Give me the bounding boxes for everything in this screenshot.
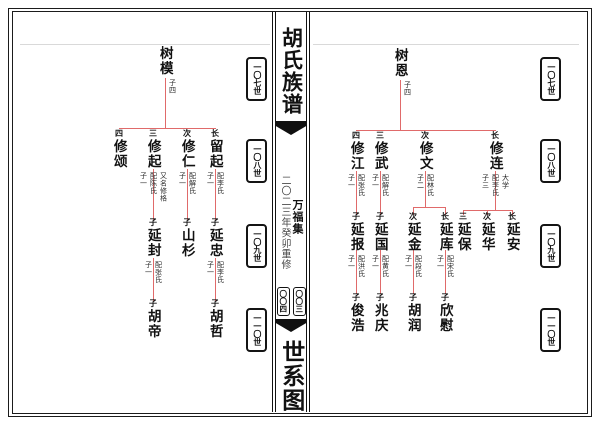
person: 四 修颂 [112, 130, 126, 169]
spine-column: 胡氏族谱 二〇二三年癸卯重修 万福集 〇〇四 〇〇三 世系图 [275, 12, 307, 412]
person-name: 延华 [480, 222, 494, 252]
person-rank: 次 [409, 213, 417, 222]
person: 四 修江 子一配张氏 [348, 132, 365, 197]
page-number-right: 〇〇三 [293, 287, 306, 316]
person-name: 胡帝 [146, 309, 160, 339]
person-annotation: 子一 [372, 174, 379, 197]
person: 长 延库 子一配宋氏 [437, 213, 454, 278]
person-annotation: 子四 [169, 79, 176, 94]
person: 子 延报 子一配洪氏 [348, 213, 365, 278]
person-rank: 三 [149, 130, 157, 139]
person-name: 修起 [146, 139, 160, 169]
person-name: 树恩 [393, 48, 407, 78]
person: 子 胡哲 [208, 300, 222, 339]
person-name: 树模 [158, 46, 172, 76]
generation-badge: 一〇七世 [540, 57, 561, 101]
person-name: 胡润 [406, 303, 420, 333]
person-name: 山杉 [180, 228, 194, 258]
person-name: 欣慰 [438, 303, 452, 333]
person-annotation: 子一 [207, 172, 214, 195]
person-name: 延库 [438, 222, 452, 252]
person-name: 修仁 [180, 139, 194, 169]
person-rank: 长 [491, 132, 499, 141]
person-name: 俊浩 [349, 303, 363, 333]
person-annotation: 配陈氏 [150, 172, 157, 202]
generation-badge-label: 一〇九世 [252, 230, 261, 262]
person-name: 修文 [418, 141, 432, 171]
person-rank: 次 [183, 130, 191, 139]
person: 树模 子四 [158, 46, 172, 94]
person-annotation: 配林氏 [427, 174, 434, 197]
person-rank: 子 [376, 213, 384, 222]
person-rank: 四 [352, 132, 360, 141]
page-numbers: 〇〇四 〇〇三 [276, 287, 306, 319]
person-rank: 长 [211, 130, 219, 139]
person-rank: 子 [376, 294, 384, 303]
person-rank: 子 [149, 219, 157, 228]
person: 子 延封 子一配张氏 [145, 219, 162, 284]
person-annotation: 子二 [417, 174, 424, 197]
person: 子 俊浩 [349, 294, 363, 333]
person-rank: 子 [149, 300, 157, 309]
person-annotation: 配解氏 [382, 174, 389, 197]
generation-badge-label: 一〇八世 [252, 145, 261, 177]
person-annotation: 子一 [372, 255, 379, 278]
volume-label: 万福集 [291, 199, 302, 235]
genealogy-book-spread: 胡氏族谱 二〇二三年癸卯重修 万福集 〇〇四 〇〇三 世系图 一〇七世 一〇八世… [0, 0, 600, 423]
person-rank: 三 [459, 213, 467, 222]
person-name: 延封 [146, 228, 160, 258]
person-name: 修江 [349, 141, 363, 171]
person: 三 修起 子一配陈氏又名修格 [140, 130, 167, 202]
person: 树恩 子四 [393, 48, 407, 96]
person: 子 胡润 [406, 294, 420, 333]
person: 子 兆庆 [373, 294, 387, 333]
person: 子 山杉 [180, 219, 194, 258]
connector-line [413, 207, 446, 208]
person: 三 修武 子一配解氏 [372, 132, 389, 197]
header-rule-left [20, 44, 270, 45]
person-annotation: 配黄氏 [382, 255, 389, 278]
spine-middle: 二〇二三年癸卯重修 万福集 [276, 135, 306, 287]
person-name: 留起 [208, 139, 222, 169]
person: 次 修文 子二配林氏 [417, 132, 434, 197]
person-rank: 子 [352, 294, 360, 303]
person-name: 延安 [505, 222, 519, 252]
person-annotation: 又名修格 [160, 172, 167, 202]
person-rank: 子 [352, 213, 360, 222]
generation-badge: 一一〇世 [540, 308, 561, 352]
person-annotation: 配张氏 [155, 261, 162, 284]
generation-badge: 一〇八世 [540, 139, 561, 183]
header-rule-right [313, 44, 579, 45]
generation-badge: 一〇九世 [540, 224, 561, 268]
generation-badge-label: 一一〇世 [252, 314, 261, 346]
person-annotation: 子一 [207, 261, 214, 284]
person-rank: 子 [211, 300, 219, 309]
person: 次 延金 子一配段氏 [405, 213, 422, 278]
person-name: 延忠 [208, 228, 222, 258]
person-annotation: 子一 [348, 174, 355, 197]
person-rank: 长 [441, 213, 449, 222]
page-number-left: 〇〇四 [277, 287, 290, 316]
generation-badge: 一〇八世 [246, 139, 267, 183]
person: 子 胡帝 [146, 300, 160, 339]
person-annotation: 子一 [437, 255, 444, 278]
person-name: 修颂 [112, 139, 126, 169]
person: 次 延华 [480, 213, 494, 252]
person: 子 延忠 子一配李氏 [207, 219, 224, 284]
person-rank: 子 [409, 294, 417, 303]
edition-note: 二〇二三年癸卯重修 [279, 175, 289, 270]
person-name: 延报 [349, 222, 363, 252]
person-annotation: 配李氏 [217, 261, 224, 284]
person-annotation: 子一 [405, 255, 412, 278]
fishtail-ornament [276, 122, 306, 135]
connector-line [119, 128, 216, 129]
generation-badge-label: 一〇七世 [252, 63, 261, 95]
generation-badge: 一一〇世 [246, 308, 267, 352]
person-annotation: 配段氏 [415, 255, 422, 278]
person: 长 修连 子三配李氏大学 [482, 132, 509, 197]
book-title: 胡氏族谱 [281, 12, 302, 121]
person-annotation: 配李氏 [492, 174, 499, 197]
person-name: 兆庆 [373, 303, 387, 333]
person-name: 延保 [456, 222, 470, 252]
person: 次 修仁 子一配解氏 [179, 130, 196, 195]
generation-badge-label: 一〇七世 [546, 63, 555, 95]
person-name: 延国 [373, 222, 387, 252]
person-rank: 子 [183, 219, 191, 228]
person: 长 留起 子一配李氏 [207, 130, 224, 195]
person-rank: 长 [508, 213, 516, 222]
spine-divider [276, 121, 306, 122]
person-annotation: 配洪氏 [358, 255, 365, 278]
book-spine: 胡氏族谱 二〇二三年癸卯重修 万福集 〇〇四 〇〇三 世系图 [272, 12, 310, 412]
person-annotation: 大学 [502, 174, 509, 197]
person-annotation: 子一 [179, 172, 186, 195]
person-name: 胡哲 [208, 309, 222, 339]
person: 长 延安 [505, 213, 519, 252]
generation-badge: 一〇七世 [246, 57, 267, 101]
person-rank: 次 [483, 213, 491, 222]
person-annotation: 子一 [140, 172, 147, 202]
person-annotation: 子四 [404, 81, 411, 96]
person-annotation: 子一 [348, 255, 355, 278]
person: 子 延国 子一配黄氏 [372, 213, 389, 278]
generation-badge: 一〇九世 [246, 224, 267, 268]
person-annotation: 子一 [145, 261, 152, 284]
person-name: 修连 [488, 141, 502, 171]
person-annotation: 子三 [482, 174, 489, 197]
person-rank: 子 [211, 219, 219, 228]
person: 子 欣慰 [438, 294, 452, 333]
person-rank: 子 [441, 294, 449, 303]
person-rank: 四 [115, 130, 123, 139]
person-rank: 次 [421, 132, 429, 141]
person-rank: 三 [376, 132, 384, 141]
generation-badge-label: 一一〇世 [546, 314, 555, 346]
person-annotation: 配张氏 [358, 174, 365, 197]
person-annotation: 配李氏 [217, 172, 224, 195]
generation-badge-label: 一〇八世 [546, 145, 555, 177]
person-name: 修武 [373, 141, 387, 171]
person-annotation: 配解氏 [189, 172, 196, 195]
person: 三 延保 [456, 213, 470, 252]
person-annotation: 配宋氏 [447, 255, 454, 278]
generation-badge-label: 一〇九世 [546, 230, 555, 262]
person-name: 延金 [406, 222, 420, 252]
fishtail-ornament [276, 319, 306, 332]
section-title: 世系图 [279, 332, 302, 412]
